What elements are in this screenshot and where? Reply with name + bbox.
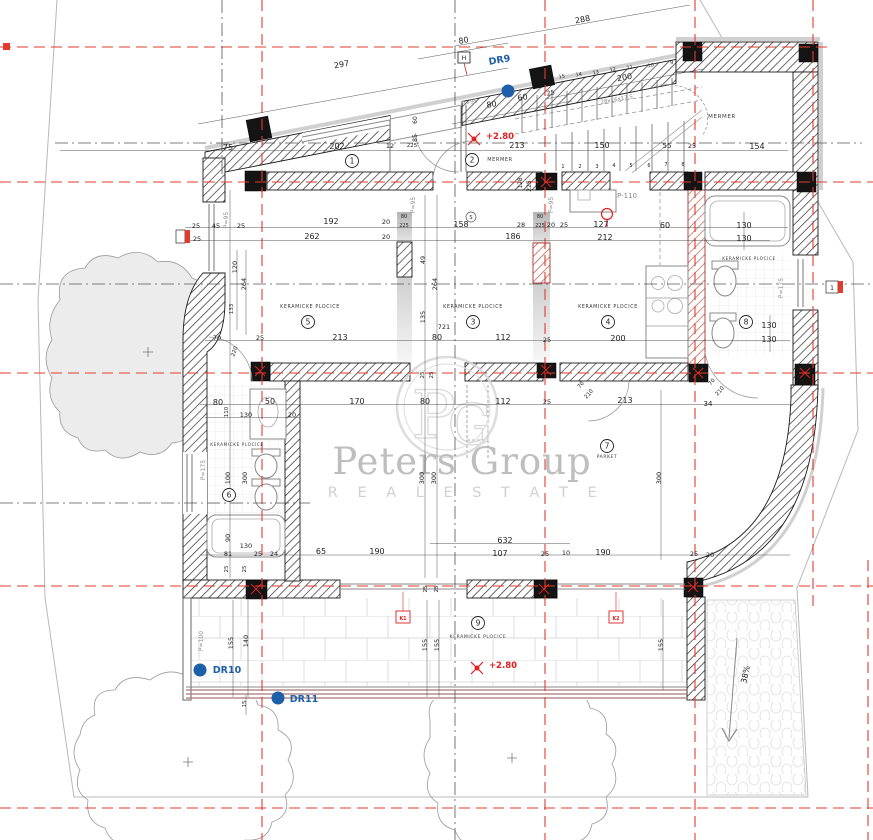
- room-finish-label: KERAMICKE PLOCICE: [443, 304, 503, 310]
- room-number: 5: [306, 318, 311, 327]
- dimension-label: 25: [242, 565, 248, 572]
- dimension-label: 25: [423, 585, 429, 592]
- dimension-label: 20: [547, 221, 555, 229]
- dimension-label: 225: [535, 223, 545, 229]
- dimension-label: 80: [432, 333, 442, 342]
- dimension-label: 721: [438, 323, 450, 331]
- dimension-label: P=95: [548, 197, 555, 213]
- bidet-8: [712, 318, 734, 348]
- dimension-label: 50: [265, 397, 275, 406]
- dimension-label: S: [469, 215, 472, 221]
- dimension-label: 150: [594, 141, 609, 150]
- dimension-label: 7: [664, 162, 667, 168]
- room-finish-label: MERMER: [708, 114, 736, 120]
- room-finish-label: KERAMICKE PLOCICE: [280, 304, 340, 310]
- dimension-label: 225: [526, 180, 533, 192]
- dimension-label: 6: [647, 163, 650, 169]
- room-finish-label: KERAMICKE PLOCICE: [450, 634, 507, 640]
- dimension-label: 65: [316, 547, 326, 556]
- dimension-label: 262: [304, 232, 319, 241]
- dimension-label: 264: [431, 278, 439, 290]
- driveway-ramp: [707, 600, 806, 795]
- room-number: 9: [476, 619, 481, 628]
- dimension-label: 130: [240, 411, 252, 419]
- dimension-label: 192: [323, 217, 338, 226]
- room-number: 7: [605, 442, 610, 451]
- dimension-label: 25: [254, 550, 262, 558]
- dimension-label: 25: [690, 550, 698, 558]
- dimension-label: 225: [399, 223, 409, 229]
- dimension-label: 80: [213, 398, 223, 407]
- bidet-6: [255, 484, 277, 510]
- dimension-label: K1: [399, 616, 407, 622]
- dimension-label: 264: [240, 278, 248, 290]
- dimension-label: 190: [369, 547, 384, 556]
- dimension-label: 12: [386, 142, 394, 150]
- dimension-label: 28: [517, 221, 525, 229]
- dimension-label: DR11: [290, 694, 318, 705]
- dimension-label: 60: [412, 116, 419, 124]
- dimension-label: 3: [595, 164, 598, 170]
- toilet-6: [255, 454, 277, 478]
- dimension-label: 25: [429, 371, 435, 378]
- dimension-label: P-110: [617, 192, 637, 200]
- dimension-label: 25: [237, 222, 245, 230]
- dimension-label: 158: [453, 220, 468, 229]
- dimension-label: 15: [558, 74, 565, 81]
- dimension-label: 15: [242, 700, 248, 707]
- room-number: 4: [606, 318, 611, 327]
- dimension-label: 20: [382, 233, 390, 241]
- dimension-label: 20: [706, 551, 714, 559]
- dimension-label: 25: [434, 585, 440, 592]
- room-finish-label: KERAMICKE PLOCICE: [210, 442, 263, 447]
- dimension-label: 225: [407, 143, 418, 149]
- dimension-label: 24: [270, 550, 278, 558]
- dimension-label: 80: [458, 35, 470, 46]
- room-number: 1: [350, 157, 355, 166]
- room-number: 3: [471, 318, 476, 327]
- dimension-label: 12: [609, 67, 616, 74]
- dimension-label: 25: [560, 221, 568, 229]
- dimension-label: 90: [224, 534, 232, 542]
- dimension-label: 133: [229, 303, 235, 314]
- dimension-label: P=95: [223, 212, 230, 228]
- dimension-label: 70: [213, 334, 221, 342]
- dimension-label: 130: [761, 335, 776, 344]
- dimension-label: P=175: [778, 278, 785, 298]
- dimension-label: 212: [597, 233, 612, 242]
- dimension-label: 14: [575, 72, 582, 79]
- dimension-label: 80: [486, 99, 498, 110]
- dimension-label: 25: [256, 334, 264, 342]
- dimension-label: 45: [212, 222, 220, 230]
- dimension-label: 55: [663, 142, 672, 150]
- room-finish-label: KERAMICKE PLOCICE: [722, 256, 775, 261]
- dimension-label: +2.80: [489, 661, 517, 671]
- dimension-label: H: [462, 55, 467, 62]
- dimension-label: 8: [681, 162, 684, 168]
- dimension-label: 120: [231, 261, 239, 273]
- dimension-label: P=95: [410, 197, 417, 213]
- dimension-label: 11: [626, 65, 633, 72]
- dimension-label: 130: [240, 542, 252, 550]
- dimension-label: 112: [495, 397, 510, 406]
- dimension-label: 202: [329, 142, 344, 151]
- dimension-label: 10: [562, 549, 570, 557]
- dimension-label: 80: [401, 214, 407, 220]
- dimension-label: 300: [418, 472, 426, 484]
- dimension-label: 300: [430, 472, 438, 484]
- room-finish-label: MERMER: [487, 157, 513, 163]
- dimension-label: 170: [349, 397, 364, 406]
- watermark-tagline: R E A L E S T A T E: [328, 485, 604, 501]
- dimension-label: 128: [517, 177, 524, 189]
- dimension-label: DR10: [213, 665, 242, 676]
- dimension-label: 75: [223, 143, 233, 152]
- dimension-label: 4: [612, 163, 615, 169]
- room-number: 6: [227, 491, 232, 500]
- drain-point-dr10: [194, 664, 207, 677]
- dimension-label: 213: [617, 396, 632, 405]
- dimension-label: 112: [495, 333, 510, 342]
- dimension-label: 140: [242, 635, 250, 647]
- drain-point-dr11: [272, 692, 285, 705]
- dimension-label: 60: [517, 92, 529, 103]
- dimension-label: 25: [193, 235, 201, 243]
- dimension-label: 2: [578, 164, 581, 170]
- dimension-label: 25: [420, 371, 426, 378]
- dimension-label: 5: [629, 163, 632, 169]
- dimension-label: 127: [593, 220, 608, 229]
- room-number: 2: [470, 156, 475, 165]
- floor-plan-canvas: P G Peters Group R E A L E S T A T E: [0, 0, 873, 840]
- room-finish-label: PARKET: [597, 454, 618, 460]
- dimension-label: 25: [224, 565, 230, 572]
- dimension-label: 154: [749, 142, 764, 151]
- dimension-label: 34: [704, 400, 713, 408]
- dimension-label: 130: [761, 321, 776, 330]
- dimension-label: 300: [655, 472, 663, 484]
- dimension-label: 10: [647, 63, 654, 70]
- dimension-label: 213: [332, 333, 347, 342]
- dimension-label: 107: [492, 549, 507, 558]
- dimension-label: 155: [421, 639, 429, 651]
- dimension-label: 20: [382, 218, 390, 226]
- dimension-label: 632: [497, 536, 512, 545]
- dimension-label: 85: [412, 134, 419, 142]
- dimension-label: 300: [241, 472, 249, 484]
- dimension-label: 60: [660, 221, 670, 230]
- dimension-label: 186: [505, 232, 520, 241]
- dimension-label: 25: [541, 550, 549, 558]
- dimension-label: 1: [830, 285, 834, 292]
- dimension-label: 49: [419, 256, 427, 264]
- dimension-label: 130: [736, 221, 751, 230]
- dimension-label: 80: [537, 214, 543, 220]
- dimension-label: 190: [595, 548, 610, 557]
- dimension-label: 13: [592, 70, 599, 77]
- dimension-label: 25: [688, 142, 696, 150]
- dimension-label: 200: [610, 334, 625, 343]
- dimension-label: 135: [419, 311, 427, 323]
- dimension-label: 110: [224, 406, 230, 417]
- dimension-label: 213: [509, 141, 524, 150]
- dimension-label: 1: [561, 164, 564, 170]
- dimension-label: K2: [612, 616, 620, 622]
- dimension-label: 155: [227, 637, 235, 649]
- dimension-label: 100: [224, 472, 232, 484]
- dimension-label: P=175: [200, 460, 207, 480]
- section-marker-left: [176, 230, 185, 243]
- room-number: 8: [744, 318, 749, 327]
- dimension-label: P=100: [198, 631, 205, 651]
- dimension-label: 81: [224, 550, 232, 558]
- dimension-label: 155: [433, 639, 441, 651]
- dimension-label: 20: [288, 411, 296, 419]
- dimension-label: 25: [192, 222, 200, 230]
- drain-point-dr9: [502, 85, 515, 98]
- floor-plan-drawing: P G Peters Group R E A L E S T A T E: [0, 0, 873, 840]
- dimension-label: 25: [543, 398, 551, 406]
- room-finish-label: KERAMICKE PLOCICE: [578, 304, 638, 310]
- dimension-label: 25: [543, 336, 551, 344]
- dimension-label: 25: [546, 88, 556, 97]
- toilet-8: [714, 266, 736, 296]
- watermark-brand: Peters Group: [332, 440, 591, 483]
- dimension-label: 80: [420, 397, 430, 406]
- dimension-label: 130: [736, 234, 751, 243]
- dimension-label: 155: [657, 639, 665, 651]
